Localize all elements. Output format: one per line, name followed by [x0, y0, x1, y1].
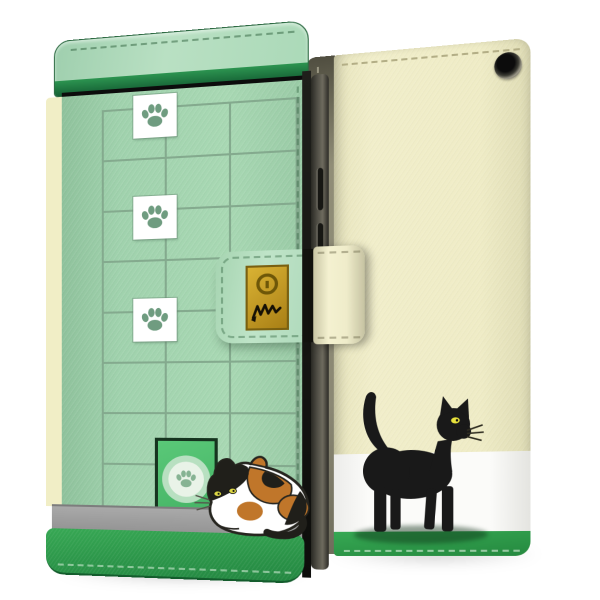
- product-photo-stage: [0, 0, 600, 600]
- back-band-stitching: [344, 550, 520, 552]
- keyhole-slot-icon: [266, 281, 269, 288]
- scratch-scribble-icon: [249, 298, 284, 324]
- paw-print-icon: [139, 99, 170, 132]
- paw-print-icon: [139, 201, 170, 233]
- flap-stitching: [71, 31, 295, 51]
- paw-tile: [133, 195, 176, 240]
- strap-gold-plate: [246, 264, 289, 330]
- paw-tile: [133, 93, 176, 139]
- front-case: [46, 20, 307, 582]
- calico-cat-illustration: [194, 447, 313, 550]
- strap-edge-crease: [302, 249, 313, 343]
- paw-print-icon: [139, 304, 170, 335]
- strap-front-part: [216, 249, 305, 343]
- paw-tile: [133, 298, 176, 342]
- camera-hole: [494, 51, 522, 80]
- back-top-stitching: [342, 48, 520, 66]
- bottom-band-stitching: [58, 563, 291, 573]
- black-cat-illustration: [348, 382, 486, 537]
- black-cat-tail: [363, 392, 388, 453]
- strap-side-part: [313, 245, 365, 344]
- volume-button: [317, 168, 324, 211]
